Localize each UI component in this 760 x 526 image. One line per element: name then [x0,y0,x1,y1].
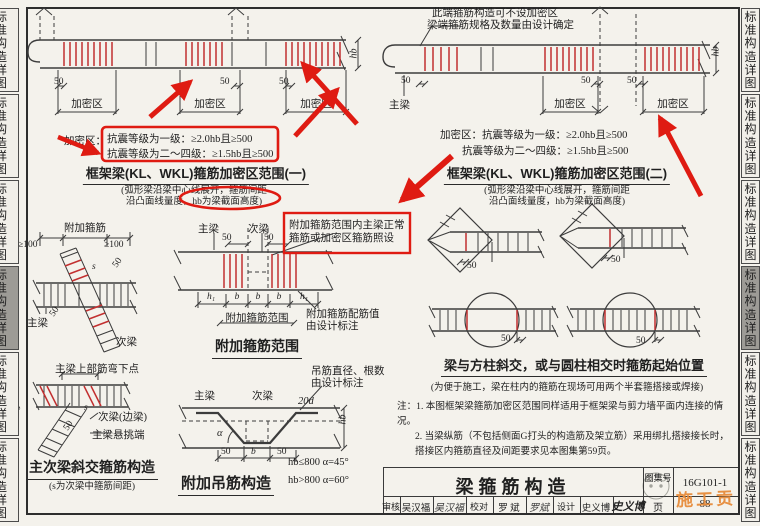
check-signature: 罗斌 [529,499,549,514]
diagram-title: 附加吊筋构造 [178,472,274,496]
left-tab-standard-detail: 标准构造详图 [0,352,19,436]
criteria-line: 抗震等级为一级：≥2.0hb且≥500 [107,131,252,146]
dim-50: 50 [401,76,411,86]
tab-label: 标准构造详图 [744,353,757,434]
tab-label: 标准构造详图 [0,95,8,176]
dim-100: ≥100 [104,240,123,250]
design-name: 史义博 [582,500,611,514]
zone-label: 加密区 [554,96,586,111]
dim-50: 50 [611,255,621,265]
diagram-title: 主次梁斜交箍筋构造 [26,457,158,480]
left-tab-standard-detail: 标准构造详图 [0,180,19,264]
zone-label: 加密区 [71,96,103,111]
dim-50: 50 [279,77,289,87]
general-notes: 注：1. 本图框架梁箍筋加密区范围同样适用于框架梁与剪力墙平面内连接的情况。 2… [397,399,731,459]
tab-label: 标准构造详图 [0,267,8,348]
diagram-title: 附加箍筋范围 [212,336,302,359]
design-label: 设计 [557,500,575,513]
sheet-title: 梁箍筋构造 [456,473,571,499]
dim-hb: hb [711,47,722,57]
diagram-subtitle: 沿凸面线量度，hb为梁截面高度) [126,193,262,207]
note: 由设计标注 [311,375,364,390]
review-label: 审核 [382,500,400,513]
tab-label: 标准构造详图 [744,181,757,262]
dim-50: 50 [627,76,637,86]
right-tab-standard-detail: 标准构造详图 [741,438,760,522]
girder-label: 主梁 [198,221,219,236]
dim-50: 50 [221,447,231,457]
dim-hb: hb [338,415,349,425]
tab-label: 标准构造详图 [0,181,8,262]
girder-label: 主梁 [27,315,48,330]
titleblock-line [673,467,674,513]
left-tab-standard-detail-active: 标准构造详图 [0,266,19,350]
dim-h1: h₁ [207,292,215,302]
criteria-line: 抗震等级为二～四级：≥1.5hb且≥500 [462,143,628,158]
dim-20d: 20d [298,396,314,407]
scanned-atlas-page: 标准构造详图 标准构造详图 标准构造详图 标准构造详图 标准构造详图 标准构造详… [0,0,760,526]
dim-b: b [251,447,256,457]
left-tab-standard-detail: 标准构造详图 [0,94,19,178]
diagram-subtitle: (为便于施工，梁在柱内的箍筋在现场可用两个半套箍搭接或焊接) [431,379,703,393]
cantilever-label: 主梁悬挑端 [92,427,145,442]
dim-s: s [84,403,88,413]
tab-label: 标准构造详图 [744,439,757,520]
right-tab-standard-detail: 标准构造详图 [741,8,760,92]
dim-50: 50 [636,336,646,346]
callout-note: 梁端箍筋规格及数量由设计确定 [427,17,574,32]
criteria-prefix: 加密区： [64,133,106,148]
angle-rule: hb>800 α=60° [288,475,349,486]
dim-50: 50 [54,77,64,87]
girder-label: 主梁 [194,388,215,403]
zone-label: 加密区 [300,96,332,111]
right-tab-standard-detail: 标准构造详图 [741,180,760,264]
design-signature: 史义博 [612,498,645,514]
review-signature: 吴汉福 [434,499,464,514]
secondary-beam-label: 次梁 [252,388,273,403]
dim-s: s [92,262,96,272]
zone-label: 加密区 [194,96,226,111]
page-label: 页 [653,499,663,514]
dim-b: b [277,292,282,302]
right-tab-standard-detail: 标准构造详图 [741,352,760,436]
dim-b: b [256,292,261,302]
review-name: 吴汉福 [402,500,431,514]
titleblock-line [383,467,738,468]
right-tab-standard-detail: 标准构造详图 [741,94,760,178]
site-watermark: 施工贡 [676,484,737,511]
dim-50: 50 [501,334,511,344]
dim-h1: h₁ [300,292,308,302]
angle-alpha: α [217,428,223,439]
left-tab-standard-detail: 标准构造详图 [0,438,19,522]
dim-50: 50 [264,233,274,243]
zone-label: 加密区 [657,96,689,111]
dim-b: b [235,292,240,302]
note-line: 注：1. 本图框架梁箍筋加密区范围同样适用于框架梁与剪力墙平面内连接的情况。 [397,399,731,429]
added-stirrup-label: 附加箍筋 [64,220,106,235]
angle-rule: hb≤800 α=45° [288,457,349,468]
tab-label: 标准构造详图 [0,9,8,90]
diagram-title: 梁与方柱斜交，或与圆柱相交时箍筋起始位置 [441,355,707,377]
diagram-subtitle: 沿凸面线量度，hb为梁截面高度) [489,193,625,207]
dim-100: ≥100 [18,240,37,250]
dim-50: 50 [222,233,232,243]
secondary-beam-label: 次梁(边梁) [98,409,147,424]
criteria-line: 抗震等级为二～四级：≥1.5hb且≥500 [107,146,273,161]
tab-label: 标准构造详图 [744,267,757,348]
boxed-note: 箍筋或加密区箍筋照设 [289,230,394,245]
tab-label: 标准构造详图 [0,439,8,520]
girder-label: 主梁 [389,97,410,112]
dim-50: 50 [277,447,287,457]
bend-point-note: 主梁上部筋弯下点 [55,361,139,376]
check-name: 罗 斌 [498,500,519,514]
tab-label: 标准构造详图 [744,95,757,176]
dim-50: 50 [220,77,230,87]
note-line: 2. 当梁纵筋（不包括侧面G打头的构造筋及架立筋）采用绑扎搭接接长时，搭接区内箍… [397,429,731,459]
left-tab-standard-detail: 标准构造详图 [0,8,19,92]
tab-label: 标准构造详图 [744,9,757,90]
right-tab-standard-detail-active: 标准构造详图 [741,266,760,350]
dim-50: 50 [581,76,591,86]
check-label: 校对 [470,500,488,513]
dim-hb: hb [349,49,360,59]
config-note: 由设计标注 [306,318,359,333]
range-label: 附加箍筋范围 [226,310,289,325]
secondary-beam-label: 次梁 [116,334,137,349]
diagram-subtitle: (s为次梁中箍筋间距) [49,478,135,492]
atlas-number-label: 图集号 [644,471,671,484]
tab-label: 标准构造详图 [0,353,8,434]
dim-50: 50 [467,261,477,271]
criteria-line: 加密区：抗震等级为一级：≥2.0hb且≥500 [440,127,627,142]
